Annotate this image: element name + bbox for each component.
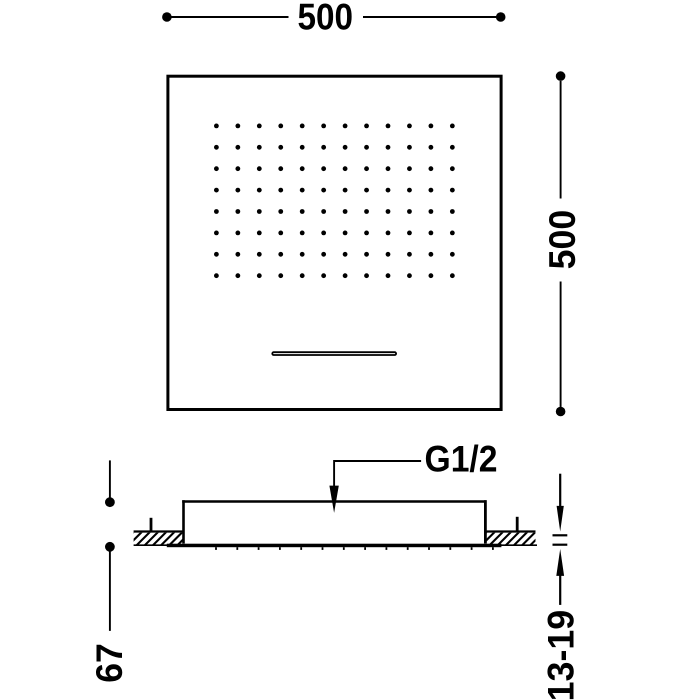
- svg-text:500: 500: [542, 210, 583, 270]
- svg-text:G1/2: G1/2: [425, 438, 498, 479]
- svg-text:67: 67: [89, 643, 130, 683]
- svg-text:13-19: 13-19: [541, 610, 582, 700]
- svg-text:500: 500: [298, 0, 354, 38]
